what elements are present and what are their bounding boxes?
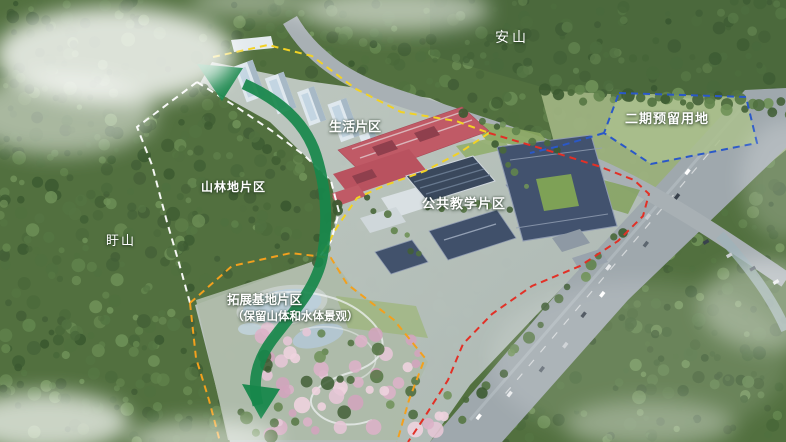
label-anshan-mountain: 安山 <box>495 30 529 44</box>
label-phase2-reserved: 二期预留用地 <box>625 112 709 125</box>
label-expansion-note: （保留山体和水体景观） <box>232 312 359 324</box>
aerial-masterplan-rendering: 安山 二期预留用地 生活片区 山林地片区 盱山 公共教学片区 拓展基地片区 （保… <box>0 0 786 442</box>
label-forest-area: 山林地片区 <box>201 181 266 193</box>
label-xushan-mountain: 盱山 <box>106 234 136 247</box>
label-teaching-area: 公共教学片区 <box>422 197 506 210</box>
label-living-area: 生活片区 <box>329 120 381 133</box>
scene-svg <box>0 0 786 442</box>
label-expansion-area: 拓展基地片区 <box>227 294 302 307</box>
